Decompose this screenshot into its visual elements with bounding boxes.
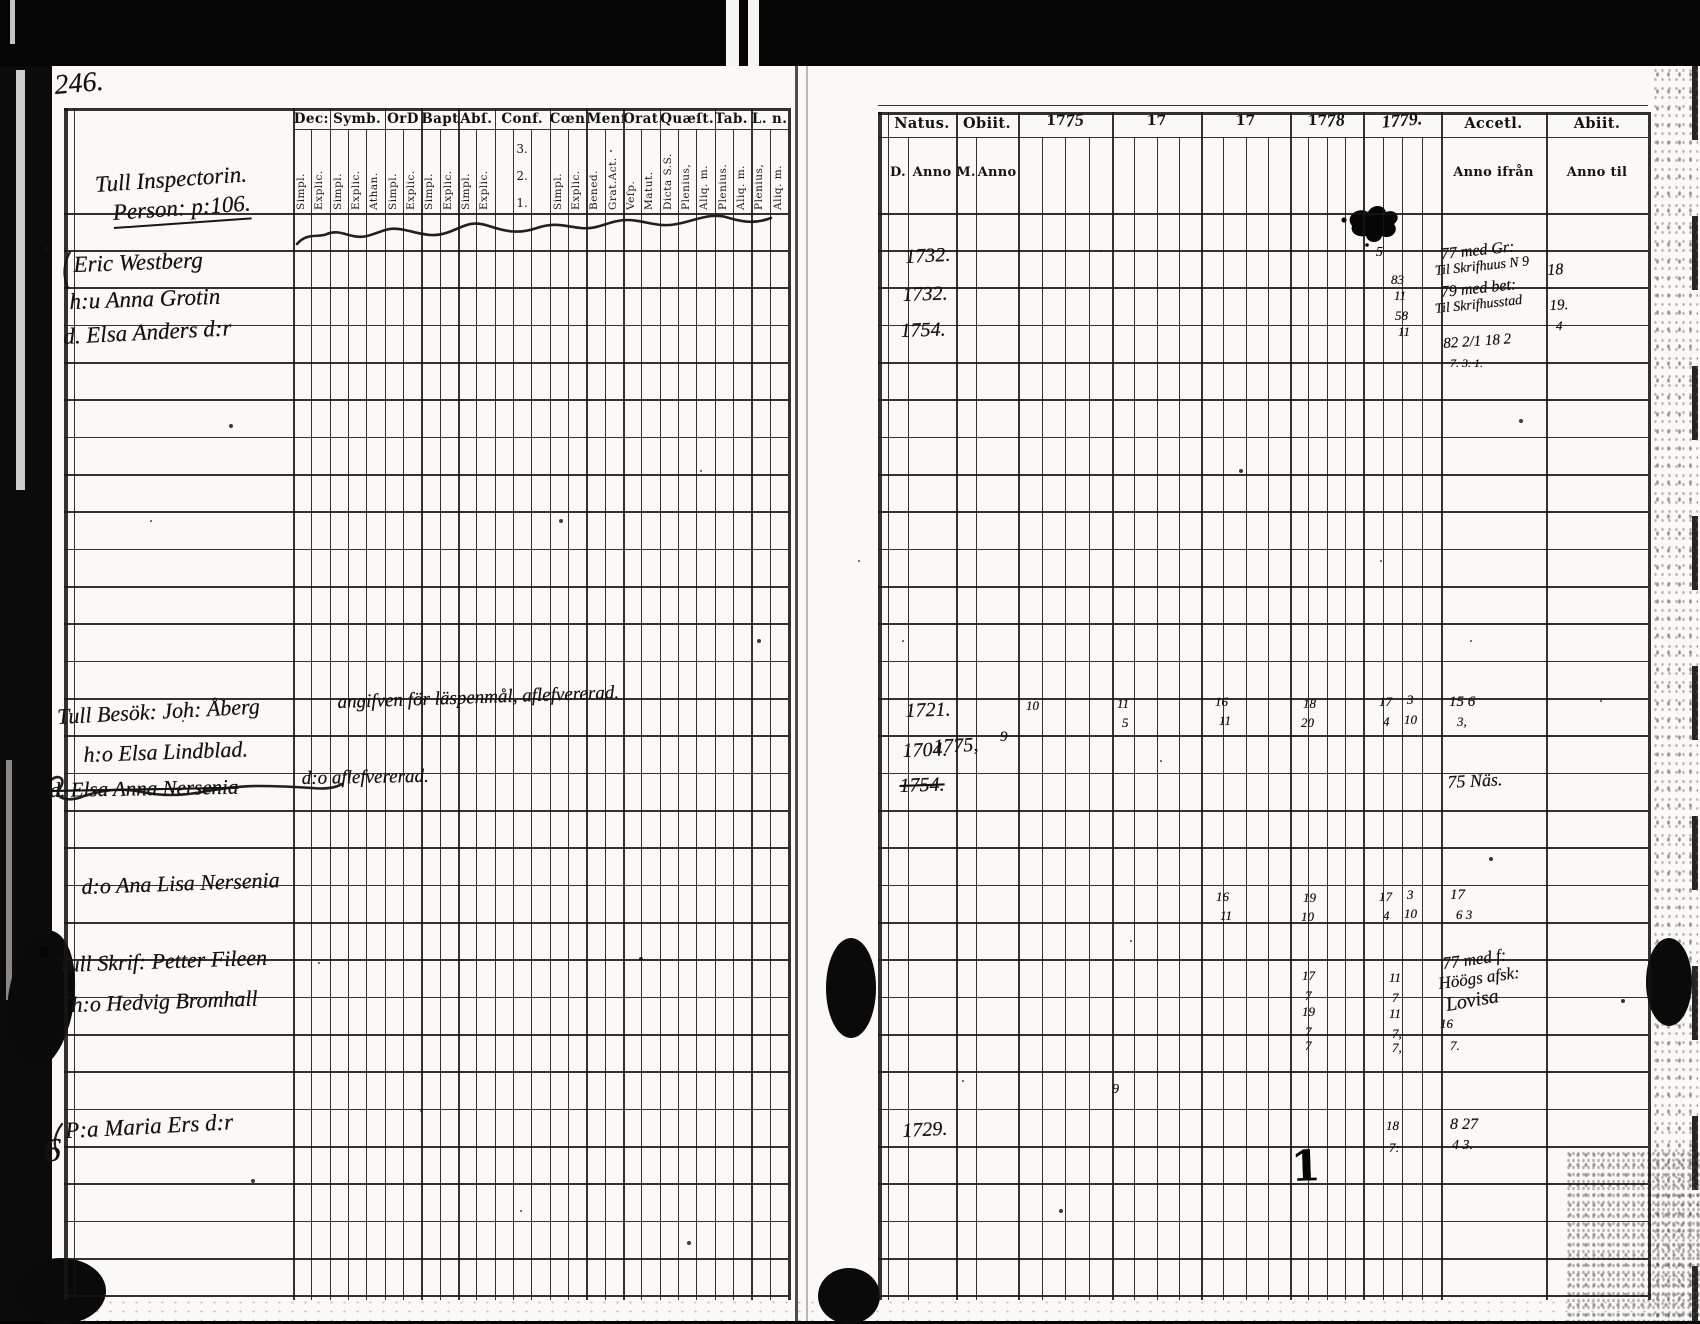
row-line [878,399,1648,401]
household-title-line2: Person: p:106. [112,190,252,229]
subcolumn-line [1246,137,1247,1300]
row-line [64,1183,788,1185]
row-line [878,1295,1648,1297]
col-sub-label: 2. [516,169,527,183]
hw-mark-58: 58 [1395,308,1408,324]
year-printed-prefix: 17 [1147,113,1166,129]
margin-x-mark: x [44,240,51,257]
subcolumn-line [733,129,734,1300]
col-sub-label: Plenius, [681,132,692,210]
right-table-top-edge [878,105,1648,106]
page-gutter-line [795,66,798,1321]
row-line [64,399,788,401]
subcolumn-line [678,129,679,1300]
year-printed-prefix: 17 [1236,113,1255,129]
hw-note-aberg: angifven för läspenmål, aflefvererad. [337,682,619,714]
subcolumn-line [1089,137,1090,1300]
hw-accell-nersenia: 75 Näs. [1447,769,1503,793]
row-line [878,287,1648,289]
hw-aberg-17a-5: 5 [1122,715,1129,731]
right-table-left-border [878,112,882,1300]
col-group-label: Quæſt. [660,110,715,129]
subcolumn-line [440,129,441,1300]
hw-mark-11a: 11 [1394,288,1406,304]
col-group-label: Dec: [293,110,330,129]
hw-aberg-1779-3: 3 [1407,692,1414,708]
col-sub-label: 3. [516,142,527,156]
row-line [878,698,1648,700]
col-sub-label: Explic. [406,132,417,210]
hw-abiit-grotin-2: 4 [1556,318,1563,334]
row-line [64,1034,788,1036]
col-sub-label: Simpl. [424,132,435,210]
hw-accell-elsa-1: 82 2/1 18 2 [1443,331,1512,353]
hw-fileen-1778-7: 7 [1305,988,1312,1004]
hw-analisa-17b-11: 11 [1220,908,1232,924]
row-line [64,586,788,588]
subcolumn-line [696,129,697,1300]
row-line [878,1109,1648,1111]
subcolumn-line [1327,137,1328,1300]
margin-six-mark: 6 [44,1132,61,1170]
col-group-label: L. n. [751,110,788,129]
hw-natus-1729: 1729. [902,1118,948,1143]
hw-aberg-1775-10: 10 [1026,698,1039,714]
year-column-label: 17 [1112,113,1201,135]
hw-analisa-accell-2: 6 3 [1456,907,1472,923]
col-group-label: Abſ. [458,110,495,129]
subhead-dies: D. [886,164,910,182]
hw-natus-1732-b: 1732. [902,282,948,307]
scan-left-streak [6,760,12,1000]
hw-aberg-1778-18: 18 [1303,696,1316,712]
hw-bold-stroke-1: 1 [1290,1141,1321,1191]
column-group-divider [1112,112,1114,1300]
hw-analisa-17b-16: 16 [1216,889,1229,905]
col-sub-label: Explic. [571,132,582,210]
group-label-underline [878,137,1648,138]
col-sub-label: Bened. [589,132,600,210]
subcolumn-line [311,129,312,1300]
subhead-anno-natus: Anno [908,164,956,182]
subcolumn-line [641,129,642,1300]
row-line [878,1183,1648,1185]
subcolumn-line [531,129,532,1300]
row-line [878,362,1648,364]
column-group-divider [1290,112,1292,1300]
hw-analisa-1779-3: 3 [1407,887,1414,903]
column-group-divider [1546,112,1548,1300]
hw-maria-1779-18: 18 [1386,1118,1399,1134]
row-line [878,623,1648,625]
year-handwritten-part: 78 [1326,109,1346,131]
row-line [878,250,1648,252]
subcolumn-line [513,129,514,1300]
hw-name-maria-ers-dr: P:a Maria Ers d:r [65,1109,234,1144]
year-printed-prefix: 17 [1308,113,1327,129]
hw-analisa-1778-10: 10 [1301,909,1314,925]
row-line [64,1221,788,1223]
ink-blob [16,1258,106,1324]
row-line [878,1258,1648,1260]
row-line [878,661,1648,663]
row-line [64,661,788,663]
scan-edge-white-bar [726,0,739,66]
subcolumn-line [1065,137,1066,1300]
row-line [64,810,788,812]
col-group-label: Symb. [330,110,385,129]
subcolumn-line [976,137,977,1300]
hw-analisa-1779-10: 10 [1404,906,1417,922]
col-group-label: Orat. [623,110,660,129]
hw-bromhall-accell-2: 16 [1440,1016,1453,1032]
column-group-divider [1018,112,1020,1300]
col-sub-label: Aliq. m. [699,132,710,210]
hw-mark-83: 83 [1391,272,1404,288]
row-line [878,922,1648,924]
hw-aberg-accell-2: 3, [1457,714,1467,730]
hw-aberg-17b-16: 16 [1215,694,1228,710]
year-column-label: 1779. [1363,113,1441,135]
hw-obiit-1775: 1775, [933,734,979,759]
hw-aberg-1779-4: 4 [1383,714,1390,730]
subcolumn-line [1422,137,1423,1300]
year-column-label: 1778 [1290,113,1363,135]
row-line [878,959,1648,961]
col-sub-label: Simpl. [388,132,399,210]
col-sub-label: 1. [516,196,527,210]
col-group-obiit: Obiit. [956,114,1018,133]
subhead-anno-ifran: Anno ifrån [1441,164,1546,182]
binding-blob [818,1268,880,1324]
hw-name-hedvig-bromhall: h:o Hedvig Bromhall [71,986,258,1018]
binding-blob [826,938,876,1038]
year-handwritten-part: 1779. [1381,108,1423,132]
row-line [878,773,1648,775]
hw-abiit-grotin-1: 19. [1549,297,1569,315]
col-sub-label: Athan. [369,132,380,210]
hw-bromhall-1778-19: 19 [1302,1004,1315,1020]
col-sub-label: Dicta S.S. [663,132,674,210]
hw-analisa-accell-1: 17 [1450,887,1465,904]
hw-name-elsa-lindblad: h:o Elsa Lindblad. [83,736,248,768]
column-group-divider [1201,112,1203,1300]
paper-specks [0,0,2,2]
col-group-label: Tab. œc. [715,110,752,129]
hw-row-7b: 7, [1392,1040,1402,1056]
scan-left-streak [16,70,25,490]
row-line [878,1034,1648,1036]
row-line [64,1146,788,1148]
page-number: 246. [53,66,105,102]
col-group-label: Cœn D [550,110,587,129]
row-line [64,549,788,551]
hw-aberg-accell-1: 15 6 [1449,694,1475,711]
hw-bromhall-1779-11: 11 [1389,1006,1401,1022]
subcolumn-line [1157,137,1158,1300]
ink-blob [1646,938,1692,1026]
col-sub-label: Plenius, [754,132,765,210]
col-group-label: Bapt. [421,110,458,129]
hw-abiit-westberg: 18 [1547,261,1564,280]
subcolumn-line [1179,137,1180,1300]
col-sub-label: Veſp. [626,132,637,210]
row-line [64,735,788,737]
ink-blot-1779-column [38,206,1398,958]
col-sub-label: Grat.Act. [608,132,619,210]
col-group-accell: Accetl. [1441,114,1546,133]
row-line [64,437,788,439]
year-handwritten-part: 75 [1065,109,1085,131]
row-line [878,735,1648,737]
subcolumn-line [403,129,404,1300]
hw-analisa-1779-4: 4 [1383,908,1390,924]
hw-natus-1732-a: 1732. [905,244,951,269]
subcolumn-line [348,129,349,1300]
header-bottom-line [878,213,1648,215]
hw-aberg-17b-11: 11 [1219,713,1231,729]
row-line [878,549,1648,551]
subcolumn-line [366,129,367,1300]
col-group-label: Conf. [495,110,550,129]
hw-maria-accell-1: 8 27 [1450,1116,1478,1134]
header-bottom-line [64,213,788,215]
subcolumn-line [605,129,606,1300]
row-line [878,437,1648,439]
hw-aberg-1778-20: 20 [1301,715,1314,731]
col-group-natus: Natus. [888,114,956,133]
year-column-label: 1775 [1018,113,1112,135]
subhead-mensis: M. [954,164,978,182]
hw-accell-elsa-2: 7. 3. 1. [1450,356,1483,371]
hw-analisa-1778-19: 19 [1303,890,1316,906]
subcolumn-line [568,129,569,1300]
scanned-parish-register-spread: 246. Tull Inspectorin. Person: p:106. x … [0,0,1700,1321]
col-sub-label: Simpl. [333,132,344,210]
row-line [878,847,1648,849]
row-line [878,474,1648,476]
row-line [64,474,788,476]
row-line [878,885,1648,887]
hw-note-nersenia: d:o aflefvererad. [302,766,429,790]
hw-name-ana-lisa-nersenia: d:o Ana Lisa Nersenia [81,867,280,900]
hw-maria-1779-7: 7: [1389,1140,1400,1156]
column-group-divider [1363,112,1365,1300]
header-row-scribble [297,216,771,244]
hw-natus-1754-a: 1754. [900,318,946,343]
hw-row-7c: 7. [1450,1038,1460,1054]
col-sub-label: Explic. [351,132,362,210]
row-line [878,997,1648,999]
year-printed-prefix: 17 [1046,113,1065,129]
subcolumn-line [1268,137,1269,1300]
hw-natus-1721: 1721. [905,698,951,723]
subhead-anno-obiit: Anno [976,164,1018,182]
row-line [878,511,1648,513]
col-sub-label: Explic. [443,132,454,210]
subcolumn-line [476,129,477,1300]
col-sub-label: Plenius. [718,132,729,210]
hw-aberg-1779-10: 10 [1404,712,1417,728]
right-table-right-border [1648,112,1651,1300]
row-line [878,325,1648,327]
left-table-right-border [788,108,791,1300]
hw-mark-11b: 11 [1398,324,1410,340]
hw-name-elsa-anders-dr: d. Elsa Anders d:r [63,315,232,350]
col-sub-label: Matut. [644,132,655,210]
subcolumn-line [1042,137,1043,1300]
row-line [64,1258,788,1260]
col-group-label: OrD [385,110,422,129]
hw-name-elsa-anna-nersenia: d. Elsa Anna Nersenia [50,775,239,803]
scan-top-border [0,0,1700,66]
hw-name-eric-westberg: Eric Westberg [73,248,203,278]
hw-aberg-1779-17: 17 [1379,694,1392,710]
row-line [64,511,788,513]
hw-mark-5: 5 [1376,245,1383,261]
row-line [64,623,788,625]
hw-aberg-17a-11: 11 [1117,696,1129,712]
col-sub-label: Explic. [479,132,490,210]
subcolumn-line [1134,137,1135,1300]
hw-fileen-1779-7: 7 [1392,990,1399,1006]
col-sub-label: Simpl. [461,132,472,210]
hw-name-anna-grotin: h:u Anna Grotin [69,284,221,315]
page-gutter-shadow [806,66,808,1321]
row-line [64,1295,788,1297]
hw-stray-9: 9 [1112,1082,1119,1098]
subcolumn-line [770,129,771,1300]
col-sub-label: Simpl. [553,132,564,210]
subhead-anno-til: Anno til [1546,164,1648,182]
row-line [878,810,1648,812]
row-line [878,586,1648,588]
right-table-left-border-inner [888,112,889,1300]
col-group-abiit: Abiit. [1546,114,1648,133]
column-group-divider [956,112,958,1300]
hw-fileen-1778-17: 17 [1302,968,1315,984]
paper-edge-texture [1652,66,1698,1321]
hw-row-7a: 7 [1305,1038,1312,1054]
col-sub-label: Explic. [314,132,325,210]
col-sub-label: Simpl. [296,132,307,210]
hw-analisa-1779-17: 17 [1379,889,1392,905]
scan-edge-white-bar [748,0,759,66]
row-line [64,922,788,924]
hw-name-petter-fileen: Tull Skrif: Petter Fileen [57,945,267,978]
hw-maria-accell-2: 4 3. [1452,1138,1473,1154]
hw-obiit-month-9: 9 [1000,729,1008,746]
hw-natus-1754-b: 1754. [899,773,945,798]
row-line [878,1071,1648,1073]
row-line [64,1109,788,1111]
col-sub-labels-conf: 3.2.1. [495,142,550,210]
row-line [64,847,788,849]
row-line [878,1221,1648,1223]
row-line [878,1146,1648,1148]
col-group-label: Menſ. [586,110,623,129]
hw-fileen-1779-11: 11 [1389,970,1401,986]
year-column-label: 17 [1201,113,1290,135]
col-sub-label: Aliq. m. [773,132,784,210]
col-sub-label: Aliq. m. [736,132,747,210]
row-line [64,1071,788,1073]
scan-edge-white-streak [10,0,15,44]
subcolumn-line [1345,137,1346,1300]
row-line [64,362,788,364]
